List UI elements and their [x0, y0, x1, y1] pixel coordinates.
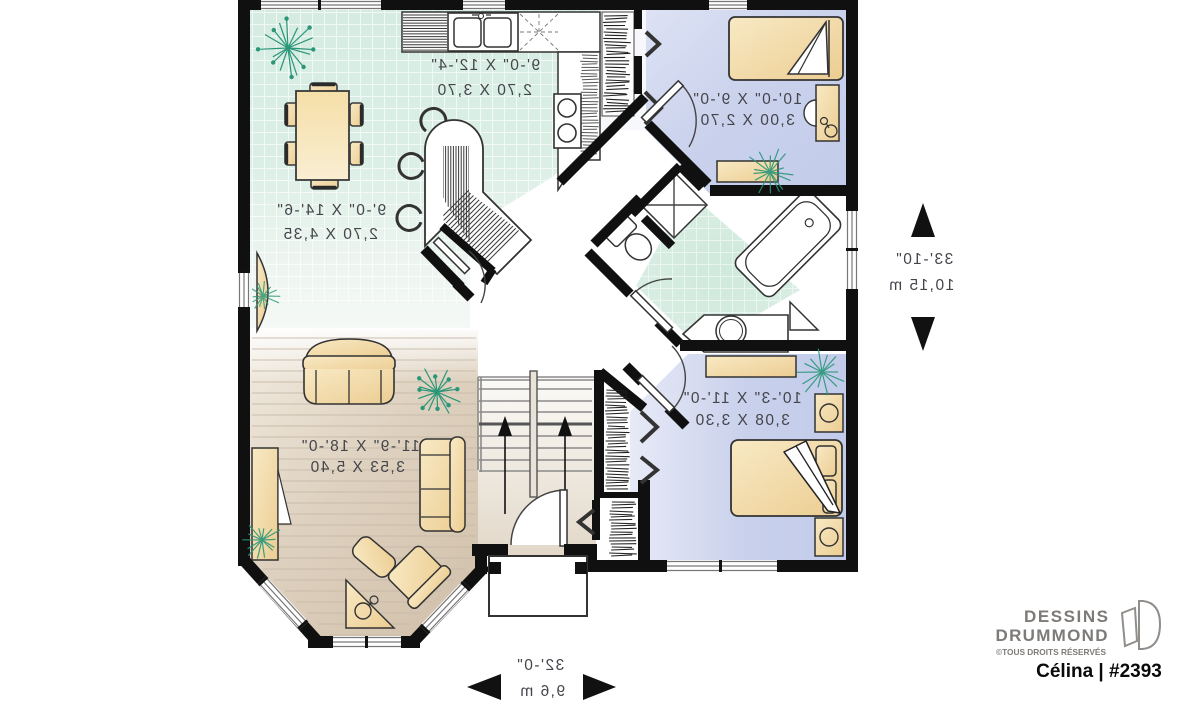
- svg-text:9,6 m: 9,6 m: [519, 683, 565, 700]
- svg-text:32'-0": 32'-0": [516, 657, 564, 674]
- svg-text:©TOUS DROITS RÉSERVÉS: ©TOUS DROITS RÉSERVÉS: [996, 647, 1106, 657]
- svg-text:DESSINS: DESSINS: [1024, 607, 1110, 626]
- svg-text:2,70 X 4,35: 2,70 X 4,35: [282, 226, 378, 243]
- svg-text:10'-0" X 9'-0": 10'-0" X 9'-0": [692, 91, 802, 108]
- svg-text:Célina | #2393: Célina | #2393: [1036, 661, 1162, 682]
- svg-text:2,70 X 3,70: 2,70 X 3,70: [436, 82, 532, 99]
- svg-text:3,00 X 2,70: 3,00 X 2,70: [699, 112, 795, 129]
- svg-text:10'-3" X 11'-0": 10'-3" X 11'-0": [682, 390, 801, 407]
- svg-text:9'-0" X 12'-4": 9'-0" X 12'-4": [430, 57, 540, 74]
- svg-text:33'-10": 33'-10": [895, 251, 954, 268]
- svg-text:10,15 m: 10,15 m: [888, 277, 955, 294]
- svg-text:DRUMMOND: DRUMMOND: [996, 626, 1109, 645]
- svg-text:11'-9" X 18'-0": 11'-9" X 18'-0": [300, 438, 419, 455]
- svg-text:3,53 X 5,40: 3,53 X 5,40: [309, 459, 405, 476]
- svg-text:3,08 X 3,30: 3,08 X 3,30: [694, 412, 790, 429]
- svg-text:9'-0" X 14'-6": 9'-0" X 14'-6": [276, 202, 386, 219]
